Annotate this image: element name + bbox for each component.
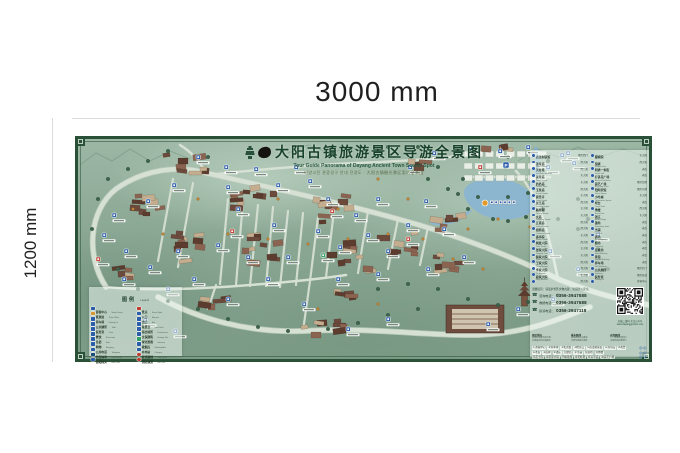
map-marker (96, 257, 100, 261)
directory-item-icon (532, 247, 535, 250)
map-marker (526, 145, 530, 149)
map-marker (424, 199, 428, 203)
map-marker (330, 209, 334, 213)
map-marker (112, 213, 116, 217)
directory-item-icon (532, 227, 535, 230)
map-marker (406, 237, 410, 241)
map-marker (338, 245, 342, 249)
legend-title-cn: 图例 (122, 297, 136, 303)
phone-icon: ☎ (532, 308, 538, 313)
map-marker (316, 229, 320, 233)
directory-item-icon (532, 180, 535, 183)
directory-item-icon (532, 267, 535, 270)
legend-row: 游船码头 Boat Dock (91, 357, 134, 362)
legend-symbol-icon (137, 342, 141, 346)
map-marker (286, 255, 290, 259)
directory-item-icon (591, 247, 594, 250)
map-marker (366, 233, 370, 237)
directory-item-icon (532, 207, 535, 210)
legend-symbol-icon (91, 327, 95, 331)
directory-item-icon (532, 234, 535, 237)
map-marker (122, 277, 126, 281)
directory-item-icon (591, 207, 594, 210)
legend-symbol-icon (91, 332, 95, 336)
legend-symbol-icon (91, 322, 95, 326)
legend-symbol-icon (137, 322, 141, 326)
directory-item-icon (591, 273, 594, 276)
title-block: 大阳古镇旅游景区导游全景图 Tour Guide Panorama of Day… (206, 142, 522, 176)
directory-item-icon (591, 214, 594, 217)
map-marker (196, 155, 200, 159)
directory-item-icon (532, 220, 535, 223)
directory-item-icon (591, 280, 594, 283)
phone-row: ☎咨询电话：0356-3947588 (532, 293, 613, 298)
directory-item-icon (591, 220, 594, 223)
legend-symbol-icon (91, 348, 95, 352)
legend-symbol-icon (91, 307, 95, 311)
directory-item-icon (532, 174, 535, 177)
map-sign-panel: P 大阳古镇旅游景区导游全景图 Tour Guide Panorama of D… (75, 136, 652, 362)
note-column: 自驾路线二广高速大阳出口沿景区指示牌前行 (610, 333, 647, 345)
legend-symbol-icon (137, 312, 141, 316)
map-marker (226, 185, 230, 189)
map-marker (276, 183, 280, 187)
map-marker (336, 277, 340, 281)
directory-item-icon (591, 161, 594, 164)
map-marker (172, 183, 176, 187)
map-marker (124, 249, 128, 253)
legend-symbol-icon (137, 317, 141, 321)
phone-icon: ☎ (532, 300, 538, 305)
map-marker (386, 249, 390, 253)
directory-panel: 游客中心Visitor Center景区西门古法制铁馆Iron Works Mu… (530, 150, 649, 357)
map-title-cn: 大阳古镇旅游景区导游全景图 (275, 142, 483, 162)
directory-item-icon (591, 187, 594, 190)
route-strip: ①游客中心②停车场③售票处④检票口⑤古法制铁馆⑥汤帝庙⑦戏台◎◎⑧老街⑨馆驿⑩钱… (532, 346, 647, 360)
directory-item-icon (532, 280, 535, 283)
contact-block: 温馨提示：请爱护景区文物古建，注意防火安全。 ☎咨询电话：0356-394758… (532, 287, 647, 332)
pagoda-icon (245, 146, 254, 159)
directory-item-icon (532, 260, 535, 263)
directory-item-icon (591, 200, 594, 203)
map-marker (462, 255, 466, 259)
tips-text: 温馨提示：请爱护景区文物古建，注意防火安全。 (532, 287, 613, 291)
width-dimension-line (72, 118, 640, 119)
legend-row: 消防通道 Fire Lane (137, 357, 180, 362)
note-column: 景区地址山西省晋城市泽州县大阳镇大阳古镇景区 (532, 333, 569, 345)
map-marker (354, 213, 358, 217)
qr-code (616, 287, 644, 315)
directory-item-icon (532, 254, 535, 257)
legend-symbol-icon (137, 332, 141, 336)
map-marker (230, 229, 234, 233)
map-marker (176, 249, 180, 253)
directory-item-icon (532, 154, 535, 157)
note-column: 乘车路线晋城客运东站乘坐大阳专线直达景区 (571, 333, 608, 345)
map-marker (426, 267, 430, 271)
legend-symbol-icon (137, 348, 141, 352)
map-marker (406, 223, 410, 227)
map-marker (226, 297, 230, 301)
legend-symbol-icon (137, 353, 141, 357)
directory-item-icon (532, 273, 535, 276)
map-marker (216, 243, 220, 247)
map-marker (308, 179, 312, 183)
legend-panel: 图例 Legend 游客中心 Visitor Center售票处 Ticket … (89, 287, 182, 356)
phone-row: ☎投诉电话：0356-3947118 (532, 308, 613, 313)
directory-item-icon (591, 234, 594, 237)
map-marker (386, 317, 390, 321)
directory-item-icon (591, 260, 594, 263)
map-marker (346, 327, 350, 331)
map-title-en: Tour Guide Panorama of Dayang Ancient To… (206, 163, 522, 169)
legend-symbol-icon (137, 327, 141, 331)
directory-item-icon (591, 194, 594, 197)
directory-item-icon (532, 214, 535, 217)
map-marker (486, 322, 490, 326)
map-marker (272, 223, 276, 227)
map-marker (236, 207, 240, 211)
map-marker (516, 307, 520, 311)
map-marker (146, 199, 150, 203)
directory-item-icon (591, 154, 594, 157)
legend-symbol-icon (91, 353, 95, 357)
phone-row: ☎救援电话：0356-3947688 (532, 300, 613, 305)
design-proof-canvas: 3000 mm 1200 mm (0, 0, 680, 453)
route-strip-row: ⑮贡士院⑯张家大院⑰魁星阁⑱天柱塔⑲关帝庙⑳演艺广场◎◎ (532, 355, 647, 360)
directory-item-icon (591, 174, 594, 177)
legend-symbol-icon (91, 317, 95, 321)
phone-icon: ☎ (532, 293, 538, 298)
directory-item-icon (591, 240, 594, 243)
directory-item-icon (591, 254, 594, 257)
qr-caption-2: www.dayangguzhen.com (613, 323, 647, 326)
ink-seal-logo (257, 146, 271, 159)
legend-symbol-icon (137, 307, 141, 311)
map-marker (148, 265, 152, 269)
directory-item-icon (532, 194, 535, 197)
notes-block: 景区地址山西省晋城市泽州县大阳镇大阳古镇景区乘车路线晋城客运东站乘坐大阳专线直达… (532, 333, 647, 345)
map-title-intl: 대양고진 관광경구 안내 전경도 · 大阳古镇観光景区案内全景図 (206, 170, 522, 176)
legend-symbol-icon (91, 337, 95, 341)
brand-rings-icon: ◎◎ (639, 355, 647, 359)
directory-item-icon (532, 167, 535, 170)
map-marker (192, 277, 196, 281)
legend-symbol-icon (91, 312, 95, 316)
map-marker (442, 227, 446, 231)
directory-item-icon (532, 161, 535, 164)
map-marker (246, 255, 250, 259)
directory-item-icon (591, 267, 594, 270)
directory-item-icon (532, 240, 535, 243)
map-marker (326, 197, 330, 201)
map-marker (321, 253, 325, 257)
width-dimension-label: 3000 mm (257, 76, 497, 108)
directory-item-icon (532, 187, 535, 190)
map-marker (376, 272, 380, 276)
directory-row: 医务室Clinic游客中心 (591, 278, 647, 285)
directory-item-icon (591, 227, 594, 230)
legend-symbol-icon (91, 358, 95, 362)
directory-row: 段家大院Duan Mansion西大阳 (532, 278, 588, 285)
map-marker (266, 277, 270, 281)
legend-symbol-icon (137, 358, 141, 362)
map-marker (302, 302, 306, 306)
height-dimension-line (52, 118, 53, 362)
directory-item-icon (532, 200, 535, 203)
legend-symbol-icon (137, 337, 141, 341)
height-dimension-label: 1200 mm (21, 193, 41, 293)
directory-item-icon (591, 180, 594, 183)
legend-symbol-icon (91, 342, 95, 346)
map-marker (102, 233, 106, 237)
directory-item-icon (591, 167, 594, 170)
map-marker (376, 197, 380, 201)
